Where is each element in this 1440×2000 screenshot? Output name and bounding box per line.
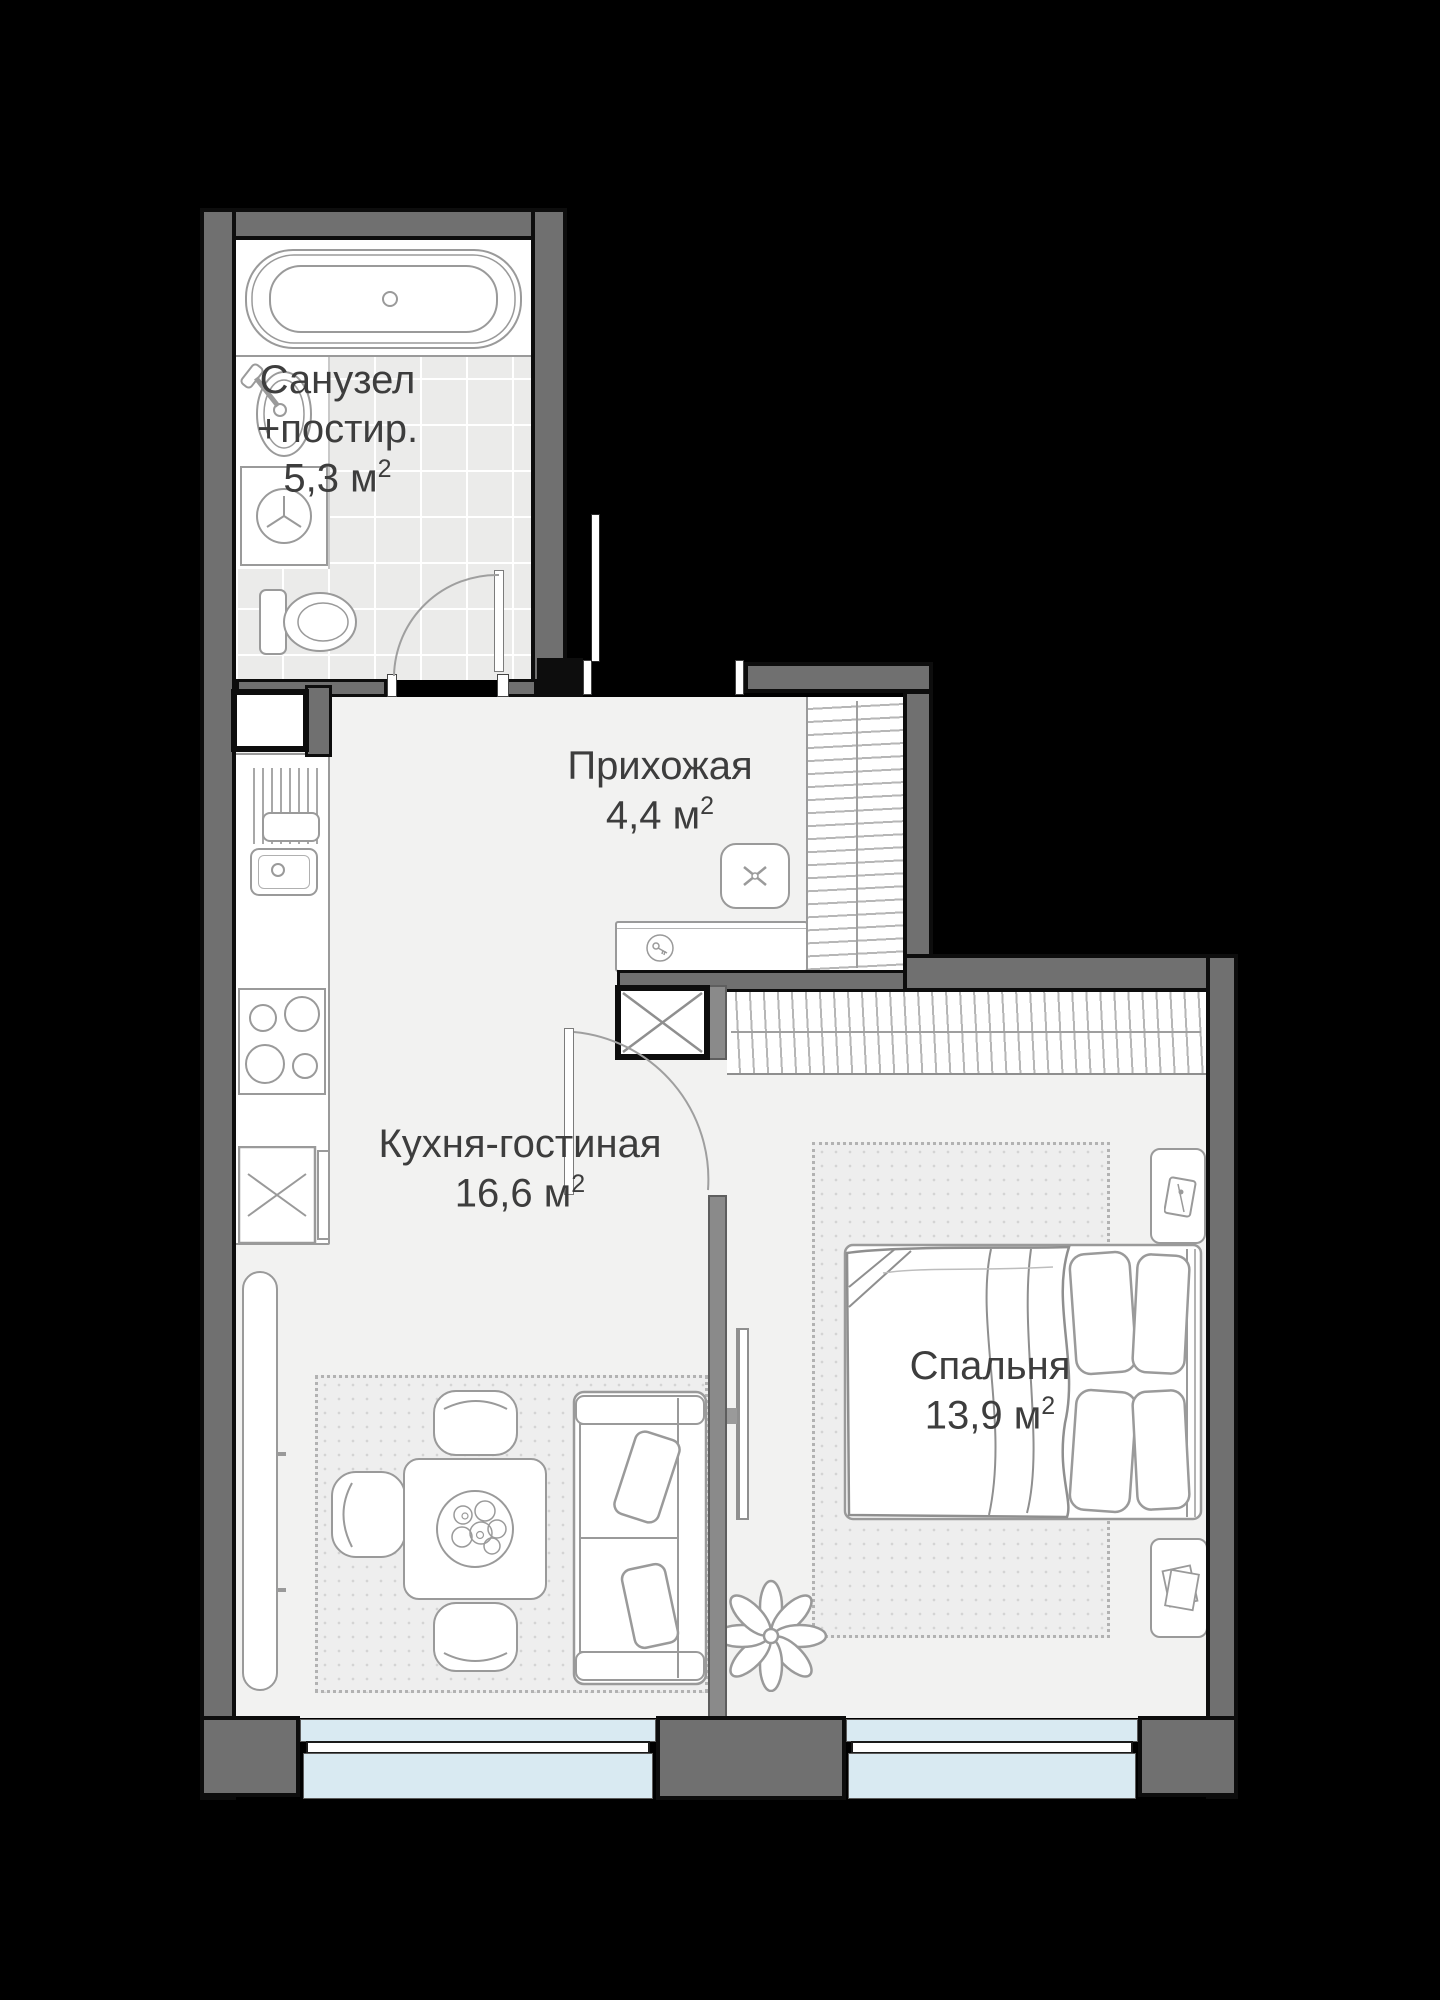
room-name-suffix: +постир. xyxy=(215,405,460,454)
living-window-glass xyxy=(300,1719,656,1742)
radiator-bracket xyxy=(276,1452,286,1456)
bathtub xyxy=(240,246,527,352)
nightstand-top xyxy=(1150,1148,1206,1244)
room-name: Прихожая xyxy=(530,742,790,791)
wardrobe-rod xyxy=(731,1031,1201,1033)
room-name: Санузел xyxy=(215,356,460,405)
food-plate xyxy=(435,1489,515,1569)
wall-pier-right xyxy=(1138,1716,1238,1797)
kitchen-sink xyxy=(250,848,318,896)
ventilation-shaft xyxy=(615,985,710,1060)
wall-pier-center xyxy=(656,1716,846,1800)
tv xyxy=(736,1328,749,1520)
bathroom-door-post xyxy=(497,674,509,697)
wardrobe-rod xyxy=(856,701,858,968)
bedroom-label: Спальня 13,9 м2 xyxy=(845,1342,1135,1440)
hallway-wardrobe xyxy=(806,697,903,972)
wall-bedroom-top xyxy=(903,954,1210,992)
bathroom-door-post xyxy=(387,674,397,697)
room-area: 13,9 м2 xyxy=(845,1391,1135,1440)
chair-top xyxy=(432,1389,519,1457)
book-icon xyxy=(1164,1176,1198,1220)
wall-entry xyxy=(744,662,933,693)
radiator-bracket xyxy=(276,1588,286,1592)
room-name: Кухня-гостиная xyxy=(320,1120,720,1169)
shaft-box xyxy=(231,689,309,752)
bedroom-wardrobe xyxy=(727,990,1206,1075)
bathroom-door-leaf xyxy=(494,570,504,672)
toilet xyxy=(258,586,360,660)
kitchen-living-label: Кухня-гостиная 16,6 м2 xyxy=(320,1120,720,1218)
hallway-label: Прихожая 4,4 м2 xyxy=(530,742,790,840)
chair-left xyxy=(330,1470,407,1559)
entry-door-post xyxy=(583,660,592,695)
wall-hall-right xyxy=(903,690,933,960)
radiator xyxy=(242,1271,278,1691)
nightstand-bottom xyxy=(1150,1538,1208,1638)
plant xyxy=(715,1578,827,1692)
console-shelf xyxy=(615,921,808,972)
keys-icon xyxy=(645,933,675,963)
wall-shaft-stub xyxy=(305,685,332,757)
room-name: Спальня xyxy=(845,1342,1135,1391)
bedroom-window-outer xyxy=(848,1753,1136,1799)
stove xyxy=(238,988,326,1095)
fridge xyxy=(238,1146,330,1244)
sofa xyxy=(572,1390,708,1686)
wall-partition-lower xyxy=(708,1195,727,1720)
wall-top xyxy=(200,208,567,240)
pouf xyxy=(720,843,790,909)
room-area: 16,6 м2 xyxy=(320,1169,720,1218)
tv-bracket xyxy=(727,1408,737,1424)
room-area: 4,4 м2 xyxy=(530,791,790,840)
faucet-tray xyxy=(262,812,320,842)
entry-door-post xyxy=(735,660,744,695)
bathroom-label: Санузел +постир. 5,3 м2 xyxy=(215,356,460,503)
chair-bottom xyxy=(432,1601,519,1673)
room-area: 5,3 м2 xyxy=(215,454,460,503)
wall-right xyxy=(1206,954,1238,1799)
wall-partition-upper xyxy=(708,985,727,1060)
living-window-outer xyxy=(303,1753,653,1799)
papers-icon xyxy=(1160,1562,1202,1614)
wall-entry-corner xyxy=(537,658,583,697)
floor-plan: Санузел +постир. 5,3 м2 Прихожая 4,4 м2 … xyxy=(0,0,1440,2000)
wall-bathroom-right xyxy=(531,208,567,697)
entry-door-leaf xyxy=(591,514,600,662)
bedroom-window-glass xyxy=(846,1719,1138,1742)
wall-pier-left xyxy=(200,1716,300,1797)
